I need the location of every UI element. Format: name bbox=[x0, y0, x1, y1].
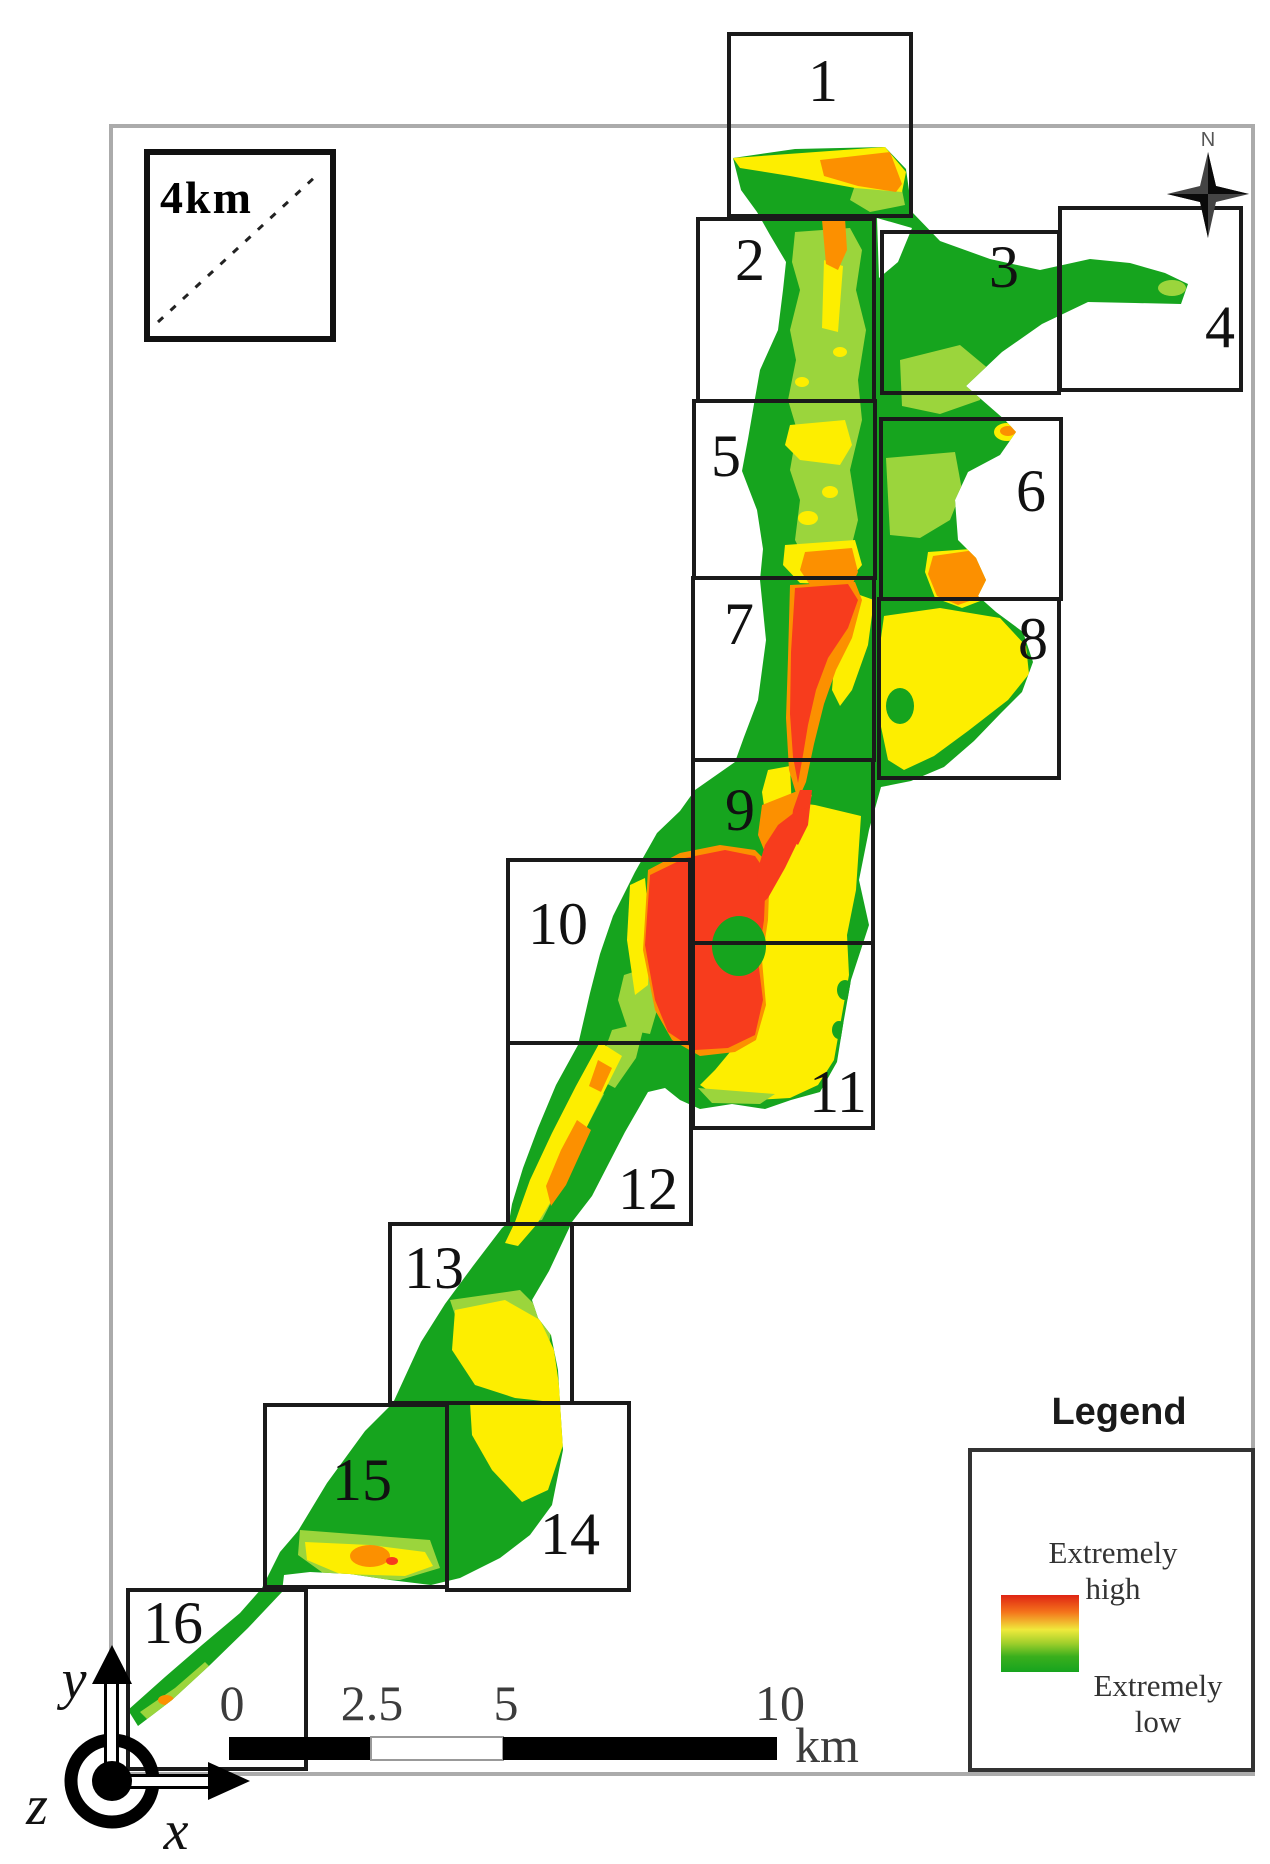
svg-text:3: 3 bbox=[989, 234, 1019, 300]
svg-text:16: 16 bbox=[143, 1590, 203, 1656]
svg-text:5: 5 bbox=[711, 423, 741, 489]
svg-text:2.5: 2.5 bbox=[341, 1675, 404, 1731]
svg-text:10: 10 bbox=[528, 891, 588, 957]
svg-text:2: 2 bbox=[735, 227, 765, 293]
svg-text:km: km bbox=[795, 1717, 859, 1773]
svg-text:high: high bbox=[1085, 1571, 1141, 1606]
svg-text:6: 6 bbox=[1016, 458, 1046, 524]
svg-text:Extremely: Extremely bbox=[1093, 1668, 1223, 1703]
svg-text:7: 7 bbox=[724, 591, 754, 657]
svg-text:15: 15 bbox=[332, 1447, 392, 1513]
svg-text:9: 9 bbox=[725, 777, 755, 843]
svg-text:4km: 4km bbox=[160, 172, 253, 223]
svg-text:x: x bbox=[163, 1800, 189, 1862]
svg-text:z: z bbox=[25, 1775, 48, 1837]
svg-text:5: 5 bbox=[494, 1675, 519, 1731]
svg-text:13: 13 bbox=[404, 1235, 464, 1301]
svg-text:0: 0 bbox=[220, 1675, 245, 1731]
svg-text:4: 4 bbox=[1205, 294, 1235, 360]
svg-text:12: 12 bbox=[618, 1156, 678, 1222]
svg-text:Legend: Legend bbox=[1051, 1391, 1186, 1433]
svg-text:14: 14 bbox=[540, 1501, 600, 1567]
svg-text:y: y bbox=[57, 1649, 87, 1711]
svg-text:11: 11 bbox=[809, 1059, 867, 1125]
svg-text:Extremely: Extremely bbox=[1048, 1535, 1178, 1570]
svg-text:1: 1 bbox=[808, 48, 838, 114]
svg-text:low: low bbox=[1135, 1704, 1182, 1739]
svg-text:N: N bbox=[1201, 129, 1215, 151]
svg-text:8: 8 bbox=[1018, 606, 1048, 672]
